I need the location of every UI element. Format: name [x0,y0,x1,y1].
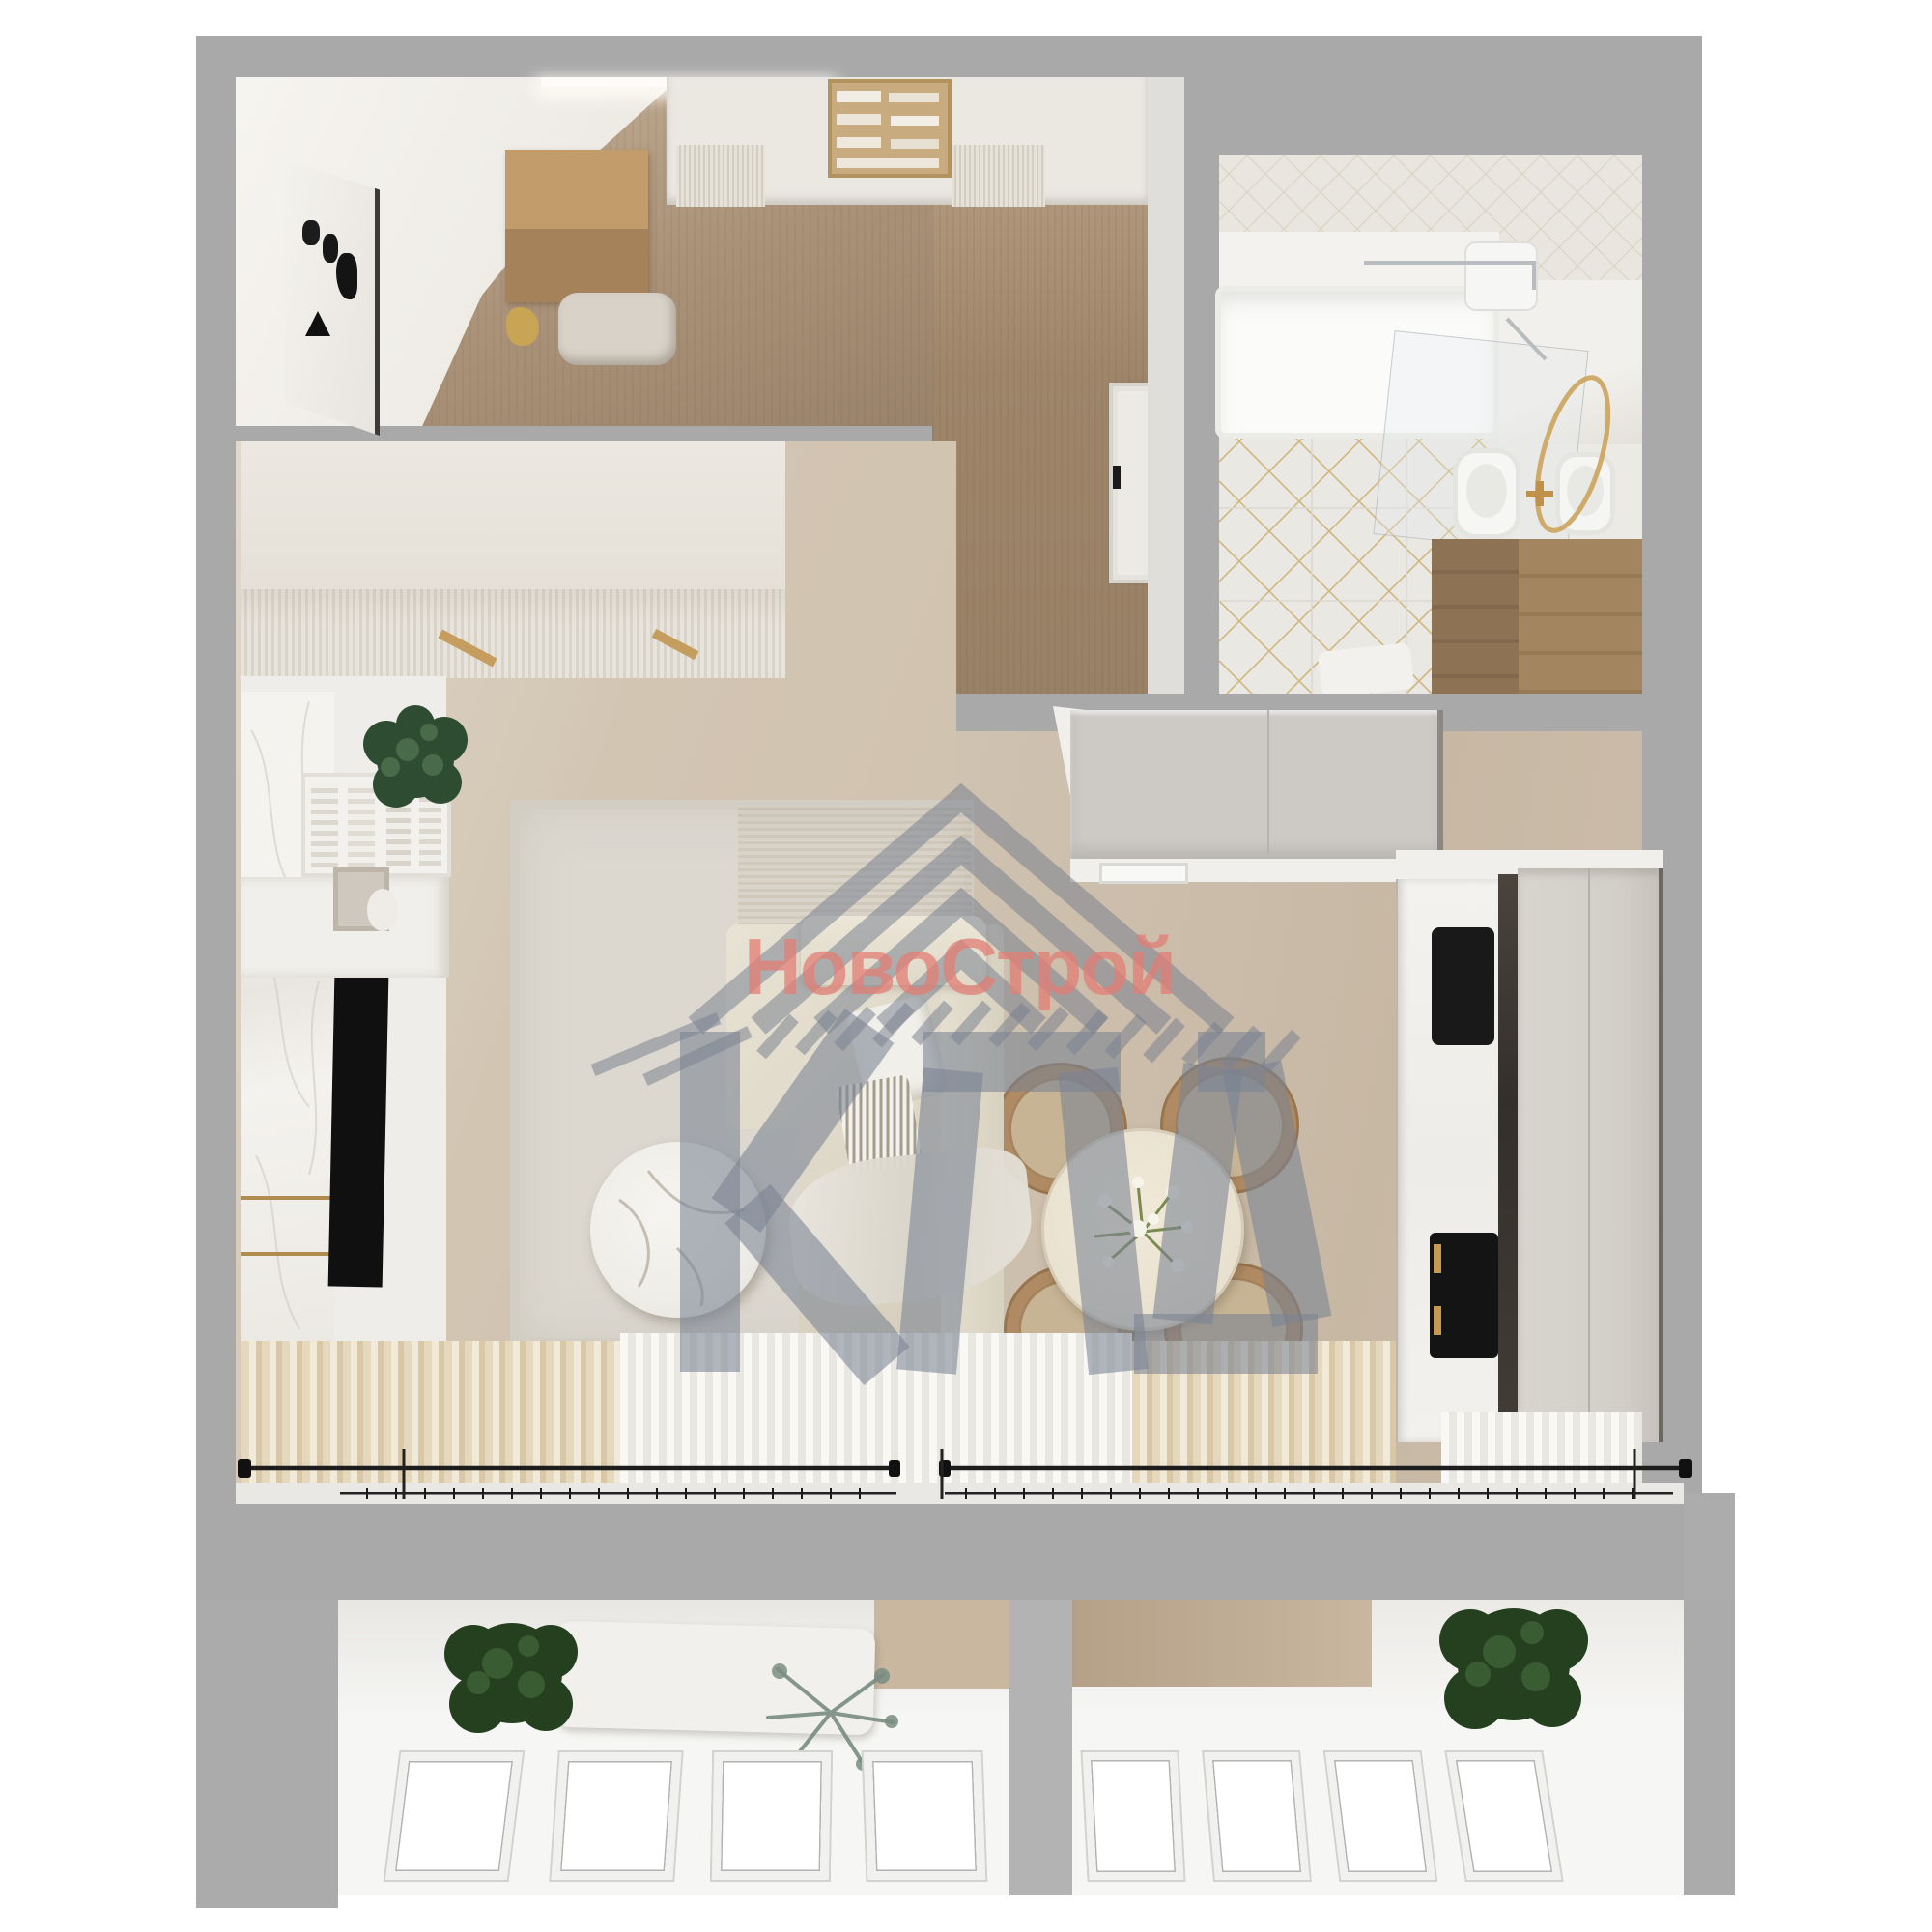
svg-text:НовоСтрой: НовоСтрой [744,922,1175,1011]
